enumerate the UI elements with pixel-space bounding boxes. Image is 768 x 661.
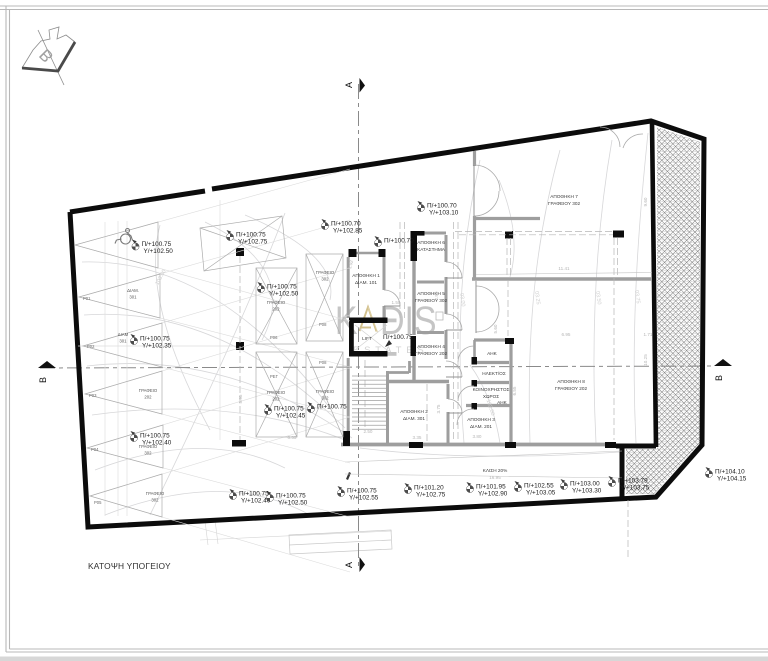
svg-text:302: 302 xyxy=(321,277,329,282)
svg-text:ΓΡΑΦΕΙΟΥ 202: ΓΡΑΦΕΙΟΥ 202 xyxy=(555,386,588,391)
svg-text:Π/+100.75: Π/+100.75 xyxy=(276,493,306,500)
svg-text:302: 302 xyxy=(151,498,159,503)
svg-text:302: 302 xyxy=(144,451,152,456)
svg-text:202: 202 xyxy=(272,307,280,312)
svg-text:Υ/+102.50: Υ/+102.50 xyxy=(144,248,174,255)
svg-text:P04: P04 xyxy=(91,447,99,452)
svg-text:ΚΟΙΝΟΧΡΗΣΤΟΣ: ΚΟΙΝΟΧΡΗΣΤΟΣ xyxy=(473,387,510,392)
svg-text:2.50: 2.50 xyxy=(364,429,373,434)
svg-text:Π/+102.55: Π/+102.55 xyxy=(524,483,554,490)
svg-text:Π/+100.70: Π/+100.70 xyxy=(384,238,414,245)
svg-text:P01: P01 xyxy=(83,296,91,301)
svg-text:Π/+101.20: Π/+101.20 xyxy=(414,485,444,492)
svg-text:ΑΠΟΘΗΚΗ 8: ΑΠΟΘΗΚΗ 8 xyxy=(557,379,585,384)
svg-text:ΑΠΟΘΗΚΗ 4: ΑΠΟΘΗΚΗ 4 xyxy=(417,344,445,349)
svg-text:ΗΛΕΚΤ/ΟΣ: ΗΛΕΚΤ/ΟΣ xyxy=(482,371,506,376)
svg-text:ΓΡΑΦΕΙΟ: ΓΡΑΦΕΙΟ xyxy=(316,270,335,275)
svg-text:A: A xyxy=(344,562,354,568)
svg-text:ΓΡΑΦΕΙΟΥ 302: ΓΡΑΦΕΙΟΥ 302 xyxy=(548,201,581,206)
svg-text:ΓΡΑΦΕΙΟΥ 202: ΓΡΑΦΕΙΟΥ 202 xyxy=(415,351,448,356)
svg-text:2.90: 2.90 xyxy=(434,291,439,300)
svg-text:ΓΡΑΦΕΙΟ: ΓΡΑΦΕΙΟ xyxy=(146,491,165,496)
svg-text:ΔΙΑΜ.: ΔΙΑΜ. xyxy=(127,288,139,293)
svg-text:9.60: 9.60 xyxy=(643,197,648,206)
svg-text:5.95: 5.95 xyxy=(238,394,243,403)
svg-text:Π/+100.70: Π/+100.70 xyxy=(331,221,361,228)
svg-text:Π/+100.75: Π/+100.75 xyxy=(140,433,170,440)
svg-text:Π/+100.75: Π/+100.75 xyxy=(347,488,377,495)
svg-text:Π/+100.75: Π/+100.75 xyxy=(383,334,413,341)
svg-text:Ρ08: Ρ08 xyxy=(319,322,327,327)
svg-text:Π/+100.75: Π/+100.75 xyxy=(274,406,304,413)
svg-text:ΑΠΟΘΗΚΗ 3: ΑΠΟΘΗΚΗ 3 xyxy=(467,417,495,422)
svg-text:ΓΡΑΦΕΙΟΥ 302: ΓΡΑΦΕΙΟΥ 302 xyxy=(415,298,448,303)
svg-text:Υ/+102.85: Υ/+102.85 xyxy=(333,228,363,235)
svg-text:301: 301 xyxy=(129,295,137,300)
svg-text:Π/+104.10: Π/+104.10 xyxy=(715,469,745,476)
svg-text:Υ/+103.30: Υ/+103.30 xyxy=(572,488,602,495)
svg-text:Π/+100.75: Π/+100.75 xyxy=(236,232,266,239)
svg-text:Υ/+102.35: Υ/+102.35 xyxy=(142,343,172,350)
svg-text:A: A xyxy=(344,82,354,88)
svg-text:1.71: 1.71 xyxy=(644,332,653,337)
svg-text:Π/+100.75: Π/+100.75 xyxy=(142,241,172,248)
svg-text:Π/+100.75: Π/+100.75 xyxy=(140,336,170,343)
svg-text:ΑΗΚ: ΑΗΚ xyxy=(487,351,498,356)
svg-text:16.95: 16.95 xyxy=(489,475,501,480)
svg-text:ΑΠΟΘΗΚΗ 2: ΑΠΟΘΗΚΗ 2 xyxy=(400,409,428,414)
svg-text:Ρ08: Ρ08 xyxy=(319,360,327,365)
svg-text:6.95: 6.95 xyxy=(562,332,571,337)
svg-text:Π/+100.75: Π/+100.75 xyxy=(239,491,269,498)
svg-text:P03: P03 xyxy=(89,393,97,398)
svg-text:Π/+103.00: Π/+103.00 xyxy=(570,481,600,488)
svg-text:ΚΑΤΑΣΤΗΜΑ: ΚΑΤΑΣΤΗΜΑ xyxy=(417,247,446,252)
svg-text:202: 202 xyxy=(144,395,152,400)
svg-text:302: 302 xyxy=(321,396,329,401)
svg-text:ΑΠΟΘΗΚΗ 1: ΑΠΟΘΗΚΗ 1 xyxy=(352,273,380,278)
svg-text:Ρ06: Ρ06 xyxy=(270,335,278,340)
svg-text:B: B xyxy=(38,377,48,383)
svg-text:11.41: 11.41 xyxy=(558,266,570,271)
svg-text:ΓΡΑΦΕΙΟ: ΓΡΑΦΕΙΟ xyxy=(267,300,286,305)
svg-text:Π/+100.75: Π/+100.75 xyxy=(317,404,347,411)
svg-text:Υ/+103.05: Υ/+103.05 xyxy=(526,490,556,497)
svg-text:3.80: 3.80 xyxy=(473,434,482,439)
svg-text:Υ/+102.90: Υ/+102.90 xyxy=(478,491,508,498)
svg-text:ΑΗΚ: ΑΗΚ xyxy=(497,400,508,405)
svg-text:Π/+100.70: Π/+100.70 xyxy=(427,203,457,210)
svg-text:Π/+103.79: Π/+103.79 xyxy=(618,478,648,485)
svg-text:Υ/+102.50: Υ/+102.50 xyxy=(278,500,308,507)
svg-text:ΚΛΙΣΗ 20%: ΚΛΙΣΗ 20% xyxy=(483,468,508,473)
svg-text:ΡΕΓ: ΡΕΓ xyxy=(270,374,279,379)
svg-text:Υ/+102.45: Υ/+102.45 xyxy=(276,413,306,420)
svg-text:ΔΙΑΜ: ΔΙΑΜ xyxy=(118,332,129,337)
svg-text:Υ/+102.50: Υ/+102.50 xyxy=(269,291,299,298)
svg-text:3.35: 3.35 xyxy=(413,435,422,440)
svg-text:P05: P05 xyxy=(94,500,102,505)
svg-text:ΑΠΟΘΗΚΗ 5: ΑΠΟΘΗΚΗ 5 xyxy=(417,291,445,296)
svg-text:ΓΡΑΦΕΙΟ: ΓΡΑΦΕΙΟ xyxy=(139,388,158,393)
svg-text:5.60: 5.60 xyxy=(493,324,498,333)
svg-text:B: B xyxy=(714,375,724,381)
svg-text:Υ/+103.75: Υ/+103.75 xyxy=(620,485,650,492)
svg-text:ΚΑΤΟΨΗ ΥΠΟΓΕΙΟΥ: ΚΑΤΟΨΗ ΥΠΟΓΕΙΟΥ xyxy=(88,561,171,571)
svg-text:3.75: 3.75 xyxy=(436,404,441,413)
svg-text:Υ/+104.15: Υ/+104.15 xyxy=(717,476,747,483)
svg-text:Π/+100.75: Π/+100.75 xyxy=(267,284,297,291)
svg-text:10.25: 10.25 xyxy=(643,354,648,366)
svg-text:ΑΠΟΘΗΚΗ 6: ΑΠΟΘΗΚΗ 6 xyxy=(417,240,445,245)
svg-text:ΔΙΑΜ. 301: ΔΙΑΜ. 301 xyxy=(403,416,425,421)
svg-text:1.55: 1.55 xyxy=(392,300,401,305)
svg-text:Υ/+103.10: Υ/+103.10 xyxy=(429,210,459,217)
svg-text:Υ/+102.75: Υ/+102.75 xyxy=(238,239,268,246)
svg-text:ΓΡΑΦΕΙΟ: ΓΡΑΦΕΙΟ xyxy=(267,390,286,395)
svg-text:Υ/+102.40: Υ/+102.40 xyxy=(142,440,172,447)
svg-text:202: 202 xyxy=(272,397,280,402)
svg-text:Υ/+102.75: Υ/+102.75 xyxy=(416,492,446,499)
svg-text:6.55: 6.55 xyxy=(288,435,297,440)
svg-text:LIFT: LIFT xyxy=(362,336,372,341)
svg-text:P02: P02 xyxy=(87,344,95,349)
svg-text:Π/+101.95: Π/+101.95 xyxy=(476,484,506,491)
svg-text:ΔΙΑΜ. 101: ΔΙΑΜ. 101 xyxy=(355,280,377,285)
svg-text:ΓΡΑΦΕΙΟ: ΓΡΑΦΕΙΟ xyxy=(316,389,335,394)
svg-text:6.55: 6.55 xyxy=(512,386,517,395)
svg-text:Υ/+102.55: Υ/+102.55 xyxy=(349,495,379,502)
svg-text:301: 301 xyxy=(119,339,127,344)
svg-text:ΑΠΟΘΗΚΗ 7: ΑΠΟΘΗΚΗ 7 xyxy=(550,194,578,199)
svg-text:ΔΙΑΜ. 201: ΔΙΑΜ. 201 xyxy=(470,424,492,429)
